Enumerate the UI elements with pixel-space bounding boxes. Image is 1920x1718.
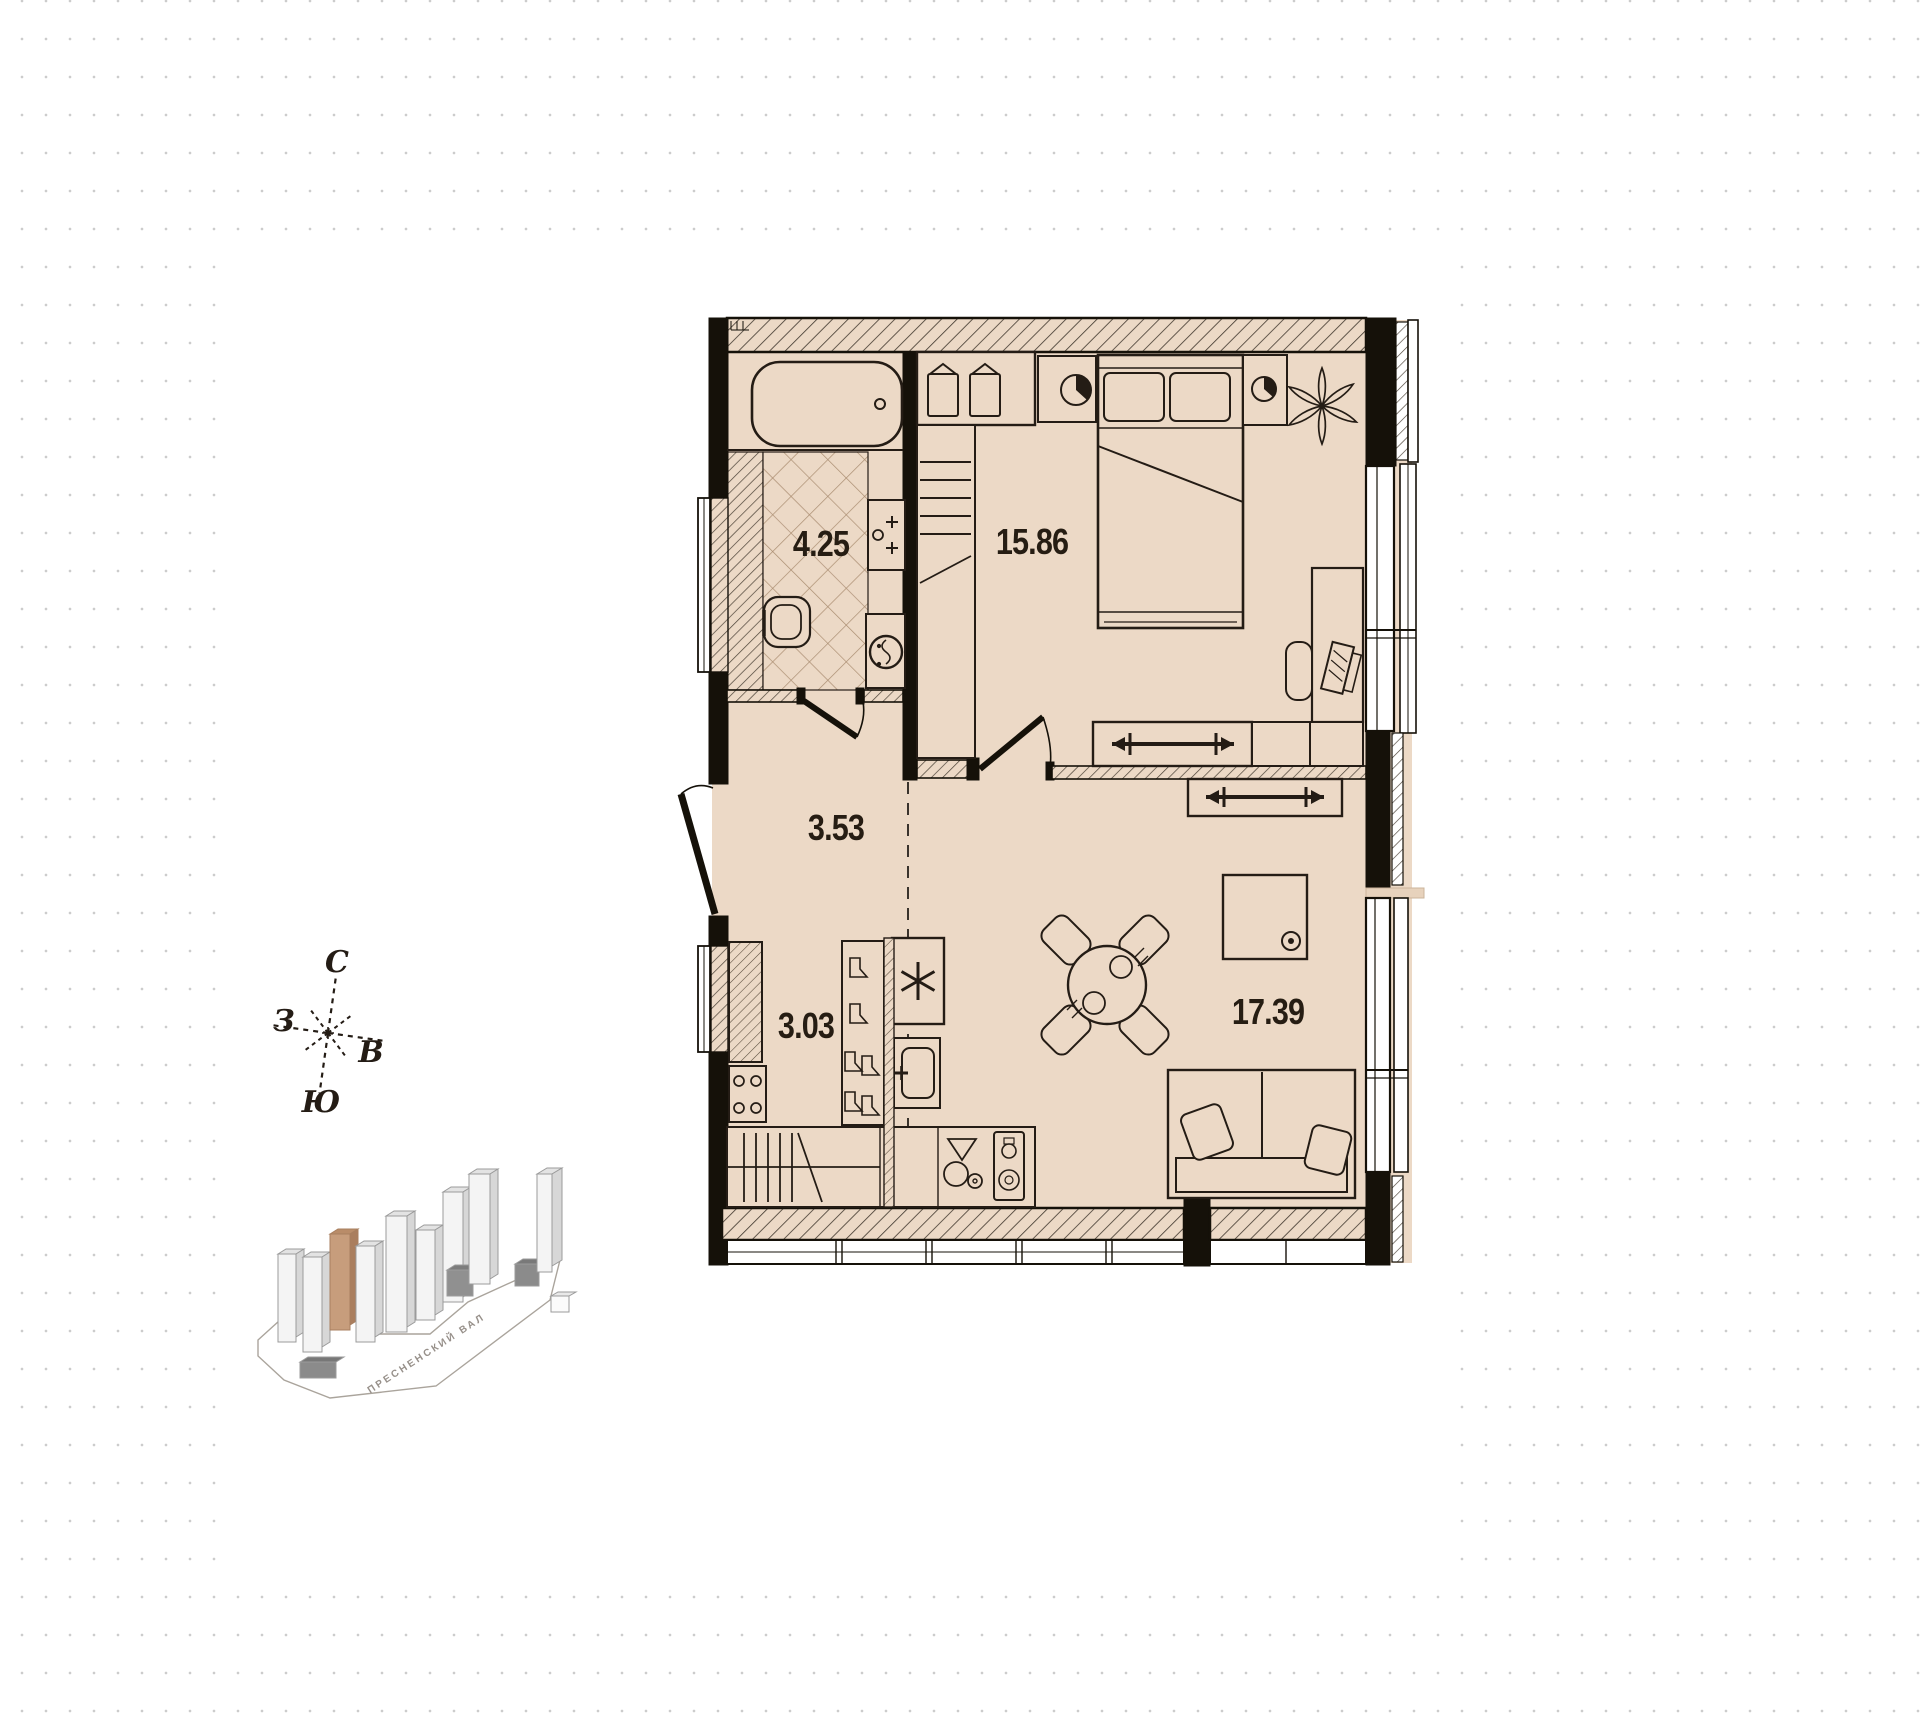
compass-west-label: З — [273, 1004, 295, 1039]
area-label-living: 17.39 — [1232, 993, 1305, 1033]
fridge-icon — [892, 938, 944, 1024]
compass-east-label: В — [357, 1035, 383, 1070]
nightstand-right-icon — [1243, 355, 1287, 425]
area-label-kitchen: 3.03 — [778, 1007, 834, 1047]
kitchen-tall-cabinet-icon — [729, 942, 762, 1062]
kitchen-partition — [884, 938, 894, 1207]
sofa-icon — [1168, 1070, 1355, 1198]
entry-door — [681, 786, 715, 914]
bedroom-sliding-wardrobe-icon — [1093, 722, 1363, 766]
living-sliding-wardrobe-icon — [1188, 779, 1342, 816]
bathroom-sink-icon — [868, 500, 905, 570]
area-label-bedroom: 15.86 — [996, 523, 1069, 563]
stove-icon — [729, 1066, 766, 1122]
wardrobe-hanging-icon — [917, 352, 1035, 425]
washing-machine-icon — [866, 614, 905, 688]
open-closet-icon — [917, 425, 975, 758]
shoe-cabinet-icon — [842, 941, 884, 1125]
compass-rose: С З В Ю — [263, 945, 394, 1120]
location-map: ПРЕСНЕНСКИЙ ВАЛ — [258, 1168, 576, 1398]
bed-icon — [1098, 355, 1243, 628]
area-label-bathroom: 4.25 — [793, 525, 849, 565]
area-label-hallway: 3.53 — [808, 809, 864, 849]
kitchen-sink-icon — [894, 1038, 940, 1108]
highlighted-building — [330, 1229, 358, 1330]
nightstand-left-icon — [1038, 356, 1096, 422]
side-graphics: С З В Ю — [200, 925, 620, 1415]
compass-north-label: С — [325, 945, 349, 980]
kitchen-counter-icon — [727, 1127, 1035, 1207]
floor-plan: 4.25 15.86 3.53 3.03 17.39 — [600, 300, 1460, 1300]
toilet-icon — [764, 597, 810, 647]
page: 4.25 15.86 3.53 3.03 17.39 — [0, 0, 1920, 1718]
bathroom-floor — [727, 452, 868, 690]
compass-south-label: Ю — [301, 1085, 341, 1120]
tv-stand-icon — [1223, 875, 1307, 959]
